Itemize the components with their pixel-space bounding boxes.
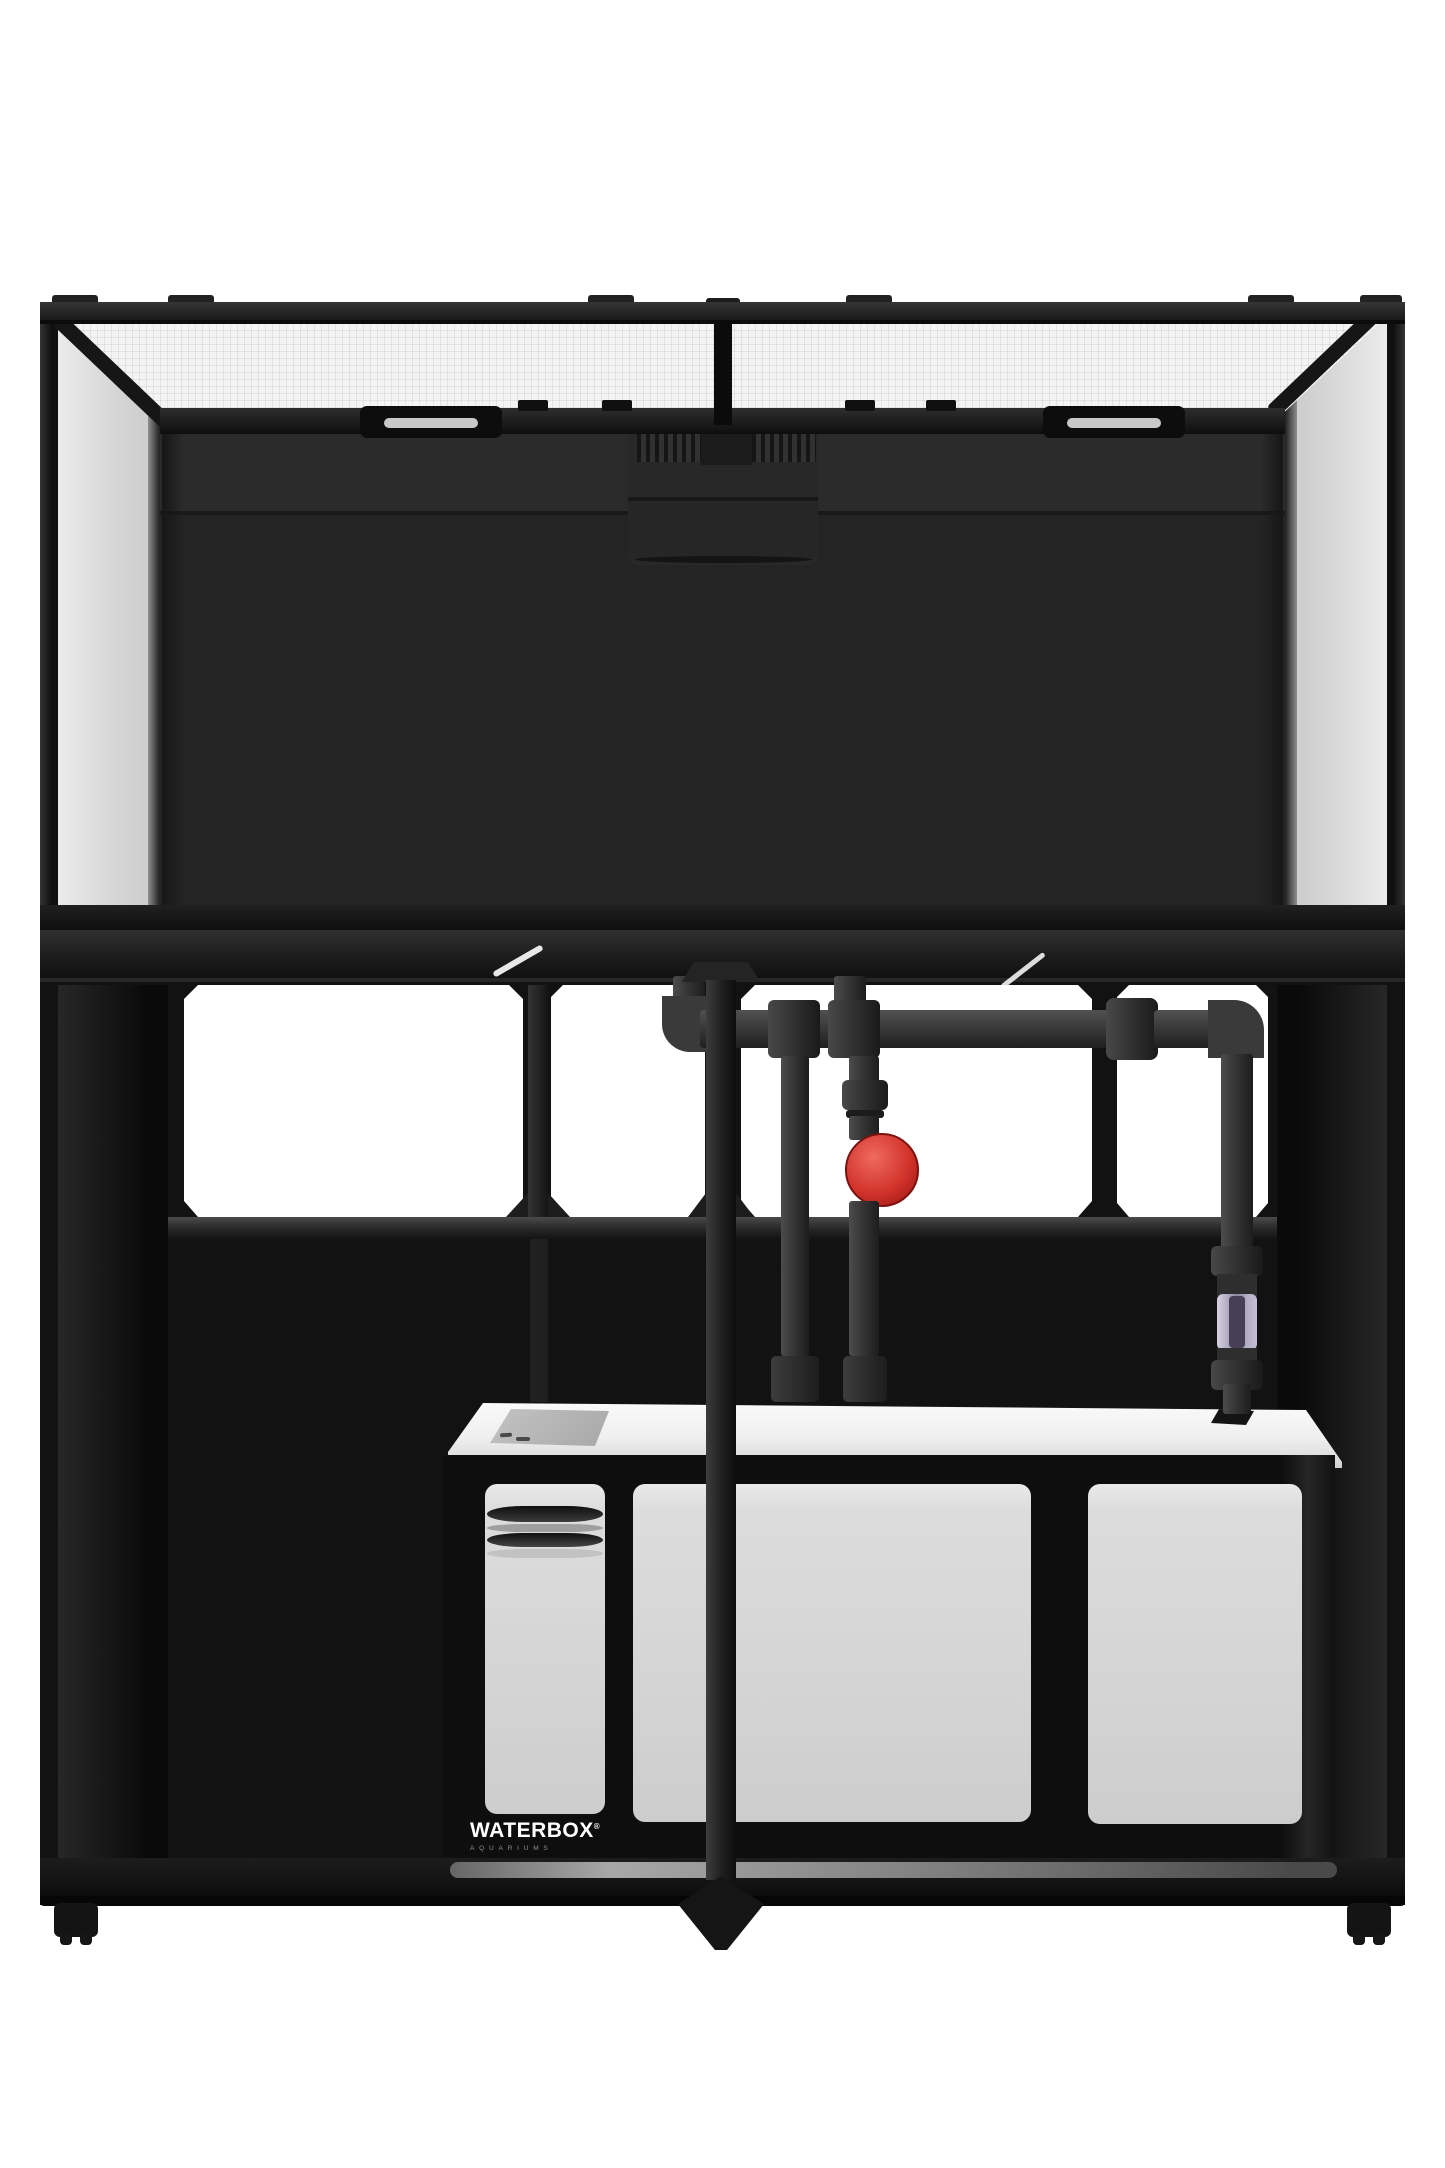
lid-clip-tab xyxy=(602,400,632,411)
overflow-lower-box xyxy=(628,501,818,559)
lid-clip-tab xyxy=(518,400,548,411)
overflow-bottom-shadow xyxy=(634,556,812,563)
check-valve-body-top xyxy=(1217,1274,1257,1296)
tank-bottom-bar xyxy=(40,905,1405,933)
overflow-weir-teeth-left xyxy=(637,433,701,462)
right-foot-pad xyxy=(1373,1934,1385,1945)
tank-interior-lower xyxy=(160,515,1285,907)
stand-back-post-lower xyxy=(530,1217,548,1402)
stand-back-opening-1 xyxy=(184,985,523,1217)
valve-union-nut xyxy=(842,1080,888,1110)
tank-top-rim xyxy=(40,302,1405,322)
manifold-pipe-right xyxy=(1154,1010,1216,1048)
drain-tee-1-sump-flange xyxy=(771,1356,819,1402)
filter-sock-gap xyxy=(487,1524,603,1532)
registered-trademark-symbol: ® xyxy=(594,1822,600,1831)
lid-center-divider xyxy=(714,313,732,425)
tank-right-glass xyxy=(1283,318,1387,908)
tank-interior-left-shade xyxy=(162,425,184,907)
right-foot-pad xyxy=(1353,1934,1365,1945)
lid-clip-tab xyxy=(845,400,875,411)
overflow-weir-center xyxy=(701,430,752,465)
tank-top-rim-edge xyxy=(40,320,1405,324)
sump-window-main xyxy=(633,1484,1031,1822)
sock-lid-latch xyxy=(500,1433,512,1438)
overflow-weir-teeth-right xyxy=(752,433,816,462)
check-valve-collar-top xyxy=(1211,1246,1263,1276)
lid-clip-tab xyxy=(926,400,956,411)
filter-sock-ring-2 xyxy=(487,1533,603,1547)
tank-interior-right-shade xyxy=(1261,425,1283,907)
stand-center-leg-gusset xyxy=(682,962,760,982)
filter-sock-gap xyxy=(487,1549,603,1558)
product-photo-stage: WATERBOX® AQUARIUMS xyxy=(0,0,1445,2168)
lid-handle-left-slot xyxy=(384,418,478,428)
check-valve-core xyxy=(1229,1296,1245,1348)
stand-back-post xyxy=(528,985,548,1217)
left-foot-pad xyxy=(60,1934,72,1945)
manifold-union-right xyxy=(1106,998,1158,1060)
brand-logo-subtext: AQUARIUMS xyxy=(470,1845,660,1852)
lid-handle-right-slot xyxy=(1067,418,1161,428)
overflow-box xyxy=(628,430,818,565)
stand-center-leg xyxy=(706,980,736,1880)
right-foot xyxy=(1347,1903,1391,1937)
filter-sock-ring-1 xyxy=(487,1506,603,1522)
sock-lid-latch xyxy=(516,1437,530,1441)
valve-pipe-lower xyxy=(849,1201,879,1356)
drain-tee-1 xyxy=(768,1000,820,1058)
brand-logo-text: WATERBOX® xyxy=(470,1816,660,1842)
gate-valve-red-handle xyxy=(845,1133,919,1207)
left-foot-pad xyxy=(80,1934,92,1945)
drain-tee-2 xyxy=(828,1000,880,1058)
drain-manifold-pipe xyxy=(700,1010,1116,1048)
check-valve-outlet-pipe xyxy=(1223,1384,1251,1414)
tank-left-outer-edge xyxy=(40,315,58,908)
sump-window-return xyxy=(1088,1484,1302,1824)
valve-sump-flange xyxy=(843,1356,887,1402)
tank-right-outer-edge xyxy=(1387,315,1405,908)
elbow-right xyxy=(1208,1000,1264,1058)
return-drop-pipe-right xyxy=(1221,1054,1253,1250)
left-foot xyxy=(54,1903,98,1937)
drain-tee-1-drop-pipe xyxy=(781,1056,809,1356)
stand-inner-left-panel xyxy=(58,985,168,1860)
stand-bottom-rail-highlight xyxy=(450,1862,1337,1878)
brand-logo: WATERBOX® AQUARIUMS xyxy=(470,1816,660,1864)
